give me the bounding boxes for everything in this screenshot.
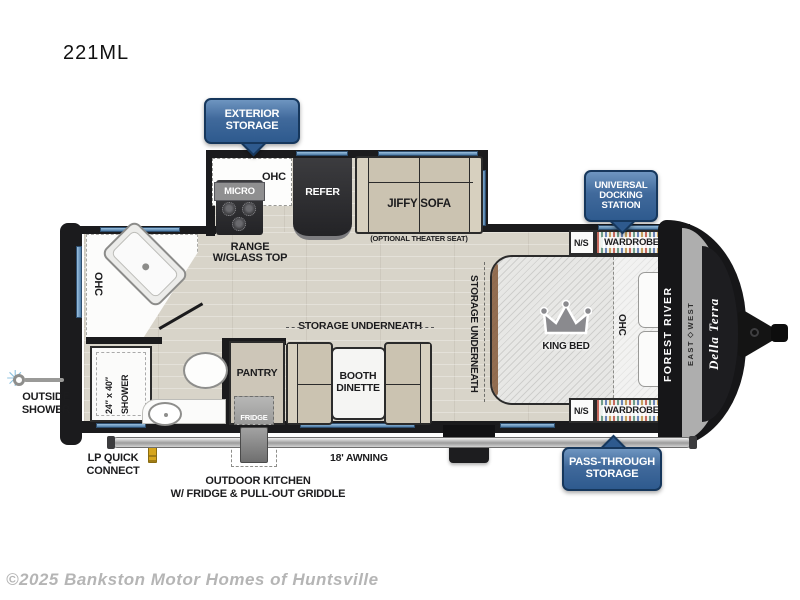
wall-bath-top (86, 337, 162, 344)
outdoor-kitchen-label-2: W/ FRIDGE & PULL-OUT GRIDDLE (158, 488, 358, 500)
awning-end-left (107, 436, 115, 449)
refrigerator: REFER (293, 158, 352, 240)
window-bottom-bedroom (500, 423, 555, 428)
dinette-storage-dash-left (286, 327, 306, 328)
nightstand-bottom: N/S (569, 398, 595, 423)
outside-shower-label-2: SHOWER (10, 404, 82, 416)
pantry-label: PANTRY (229, 367, 285, 379)
brand-manufacturer: FOREST RIVER (662, 220, 674, 448)
lp-connector-icon (148, 447, 157, 463)
sofa-armrest-left (357, 158, 369, 232)
dinette-label-1: BOOTH (308, 370, 408, 382)
awning-end-right (689, 436, 697, 449)
sofa-label: JIFFY SOFA (357, 198, 481, 210)
wardrobe-bottom-label: WARDROBE (601, 405, 662, 416)
window-rear-wall (76, 246, 82, 318)
lp-label-2: CONNECT (80, 465, 146, 477)
king-bed: OHC KING BED (490, 255, 670, 405)
bed-frame-edge (492, 263, 498, 396)
sofa-center-line (419, 158, 420, 232)
bench-back (420, 344, 430, 423)
outside-shower-label-1: OUTSIDE (10, 391, 82, 403)
pass-through-line2: STORAGE (564, 469, 660, 481)
fridge-label: FRIDGE (235, 413, 273, 422)
microwave: MICRO (214, 182, 265, 201)
brand-model: Della Terra (706, 220, 722, 448)
ns-bottom-label: N/S (574, 406, 588, 416)
universal-docking-line3: STATION (586, 201, 656, 211)
window-kitchen (296, 151, 348, 156)
bath-sink (148, 402, 182, 426)
exterior-storage-badge: EXTERIOR STORAGE (204, 98, 300, 144)
sofa-armrest-right (469, 158, 481, 232)
wardrobe-top-label: WARDROBE (601, 237, 662, 248)
dinette-label-2: DINETTE (308, 382, 408, 394)
dinette-storage-dash-right (414, 327, 434, 328)
outside-shower-pipe (24, 378, 64, 382)
bench-back (288, 344, 298, 423)
bed-storage-label: STORAGE UNDERNEATH (468, 268, 479, 400)
dinette-storage-label: STORAGE UNDERNEATH (255, 320, 465, 332)
bed-storage-dashline (484, 262, 485, 402)
shower-size-label: 24″ x 40″ (104, 358, 114, 414)
page-title: 221ML (63, 42, 129, 65)
exterior-storage-line2: STORAGE (206, 121, 298, 133)
watermark: ©2025 Bankston Motor Homes of Huntsville (6, 570, 379, 590)
lp-label-1: LP QUICK (80, 452, 146, 464)
universal-docking-badge: UNIVERSAL DOCKING STATION (584, 170, 658, 222)
bath-faucet (164, 413, 168, 417)
indoor-fridge: FRIDGE (234, 396, 274, 425)
awning-label: 18' AWNING (330, 452, 388, 464)
pass-through-storage-badge: PASS-THROUGH STORAGE (562, 447, 662, 491)
refer-label: REFER (293, 186, 352, 198)
nightstand-top: N/S (569, 230, 595, 255)
shower-label: SHOWER (120, 358, 130, 414)
hitch-arm-ring (750, 328, 759, 337)
sofa-seat-line (369, 182, 473, 183)
king-bed-label: KING BED (516, 341, 616, 352)
ohc-kitchen-label: OHC (262, 171, 286, 183)
jiffy-sofa: JIFFY SOFA (355, 156, 483, 234)
sofa-note: (OPTIONAL THEATER SEAT) (355, 234, 483, 243)
toilet (183, 352, 228, 389)
brand-division: EAST◇WEST (686, 220, 695, 448)
window-bottom-bath (96, 423, 146, 428)
ns-top-label: N/S (574, 238, 588, 248)
outdoor-kitchen-slide (240, 427, 268, 463)
bed-ohc-label: OHC (616, 314, 627, 336)
floorplan-page: 221ML OHC MICRO RANGE W/GLASS TOP REFER … (0, 0, 800, 600)
outdoor-kitchen-label-1: OUTDOOR KITCHEN (158, 475, 358, 487)
front-cap: FOREST RIVER EAST◇WEST Della Terra (658, 220, 788, 448)
range-label-2: W/GLASS TOP (200, 252, 300, 264)
micro-label: MICRO (215, 186, 264, 197)
ohc-counter-label: OHC (92, 272, 104, 296)
crown-icon (540, 299, 592, 339)
hitch-coupler (771, 324, 788, 342)
